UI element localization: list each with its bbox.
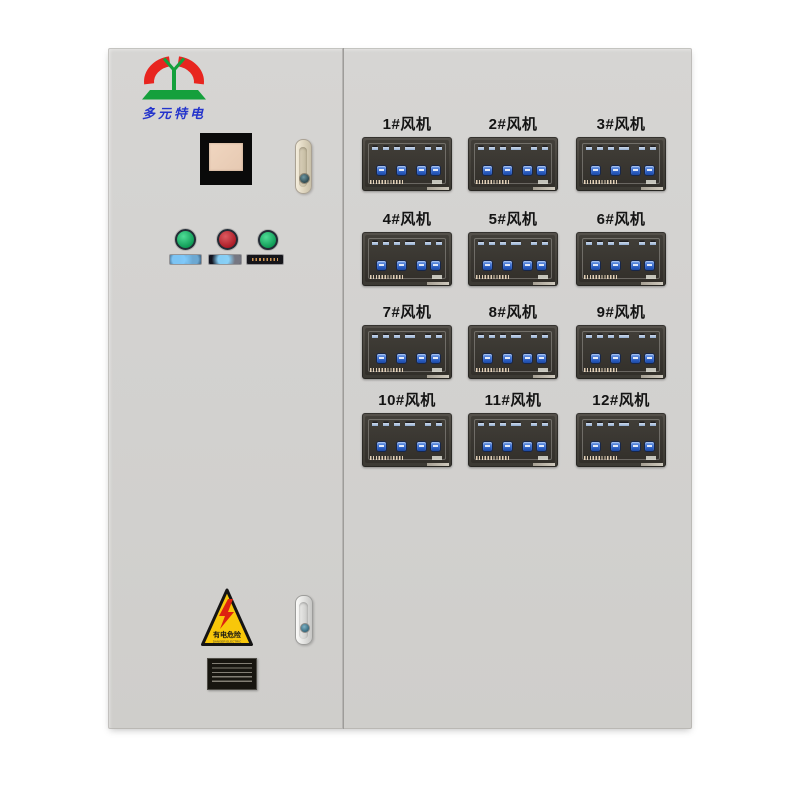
indicator-lamp xyxy=(383,423,389,426)
fan-controller-panel xyxy=(362,137,452,191)
fan-controller-panel xyxy=(576,325,666,379)
indicator-lamp xyxy=(511,147,521,150)
fan-controller-panel xyxy=(362,413,452,467)
indicator-lamp xyxy=(405,242,415,245)
panel-frame-label xyxy=(641,187,663,190)
indicator-lamp xyxy=(511,423,521,426)
panel-caption-text xyxy=(370,180,404,184)
fan-panel-label: 8#风机 xyxy=(463,304,563,322)
panel-button[interactable] xyxy=(431,261,440,270)
panel-frame-label xyxy=(641,463,663,466)
panel-button[interactable] xyxy=(523,442,532,451)
panel-button[interactable] xyxy=(591,261,600,270)
panel-model-text xyxy=(646,368,656,372)
indicator-lamp xyxy=(425,147,431,150)
panel-button[interactable] xyxy=(431,442,440,451)
panel-button[interactable] xyxy=(591,442,600,451)
panel-button[interactable] xyxy=(631,261,640,270)
panel-button[interactable] xyxy=(631,442,640,451)
panel-frame-label xyxy=(641,375,663,378)
fan-panel-label: 4#风机 xyxy=(357,211,457,229)
panel-frame-label xyxy=(533,463,555,466)
panel-button[interactable] xyxy=(397,166,406,175)
fan-controller-panel xyxy=(468,137,558,191)
panel-frame-label xyxy=(427,375,449,378)
fan-panel-unit: 9#风机 xyxy=(571,304,671,382)
indicator-lamp xyxy=(650,242,656,245)
fan-controller-panel xyxy=(576,413,666,467)
indicator-lamp xyxy=(394,423,400,426)
fan-controller-panel xyxy=(576,232,666,286)
fan-panel-unit: 11#风机 xyxy=(463,392,563,470)
indicator-lamp xyxy=(478,147,484,150)
indicator-lamp xyxy=(597,423,603,426)
indicator-lamp xyxy=(597,335,603,338)
panel-button[interactable] xyxy=(377,354,386,363)
indicator-lamp xyxy=(511,335,521,338)
button-label-strip-3 xyxy=(247,255,283,264)
indicator-lamp xyxy=(650,335,656,338)
indicator-lamp xyxy=(489,242,495,245)
indicator-lamp xyxy=(478,242,484,245)
indicator-lamp xyxy=(500,335,506,338)
panel-button[interactable] xyxy=(417,442,426,451)
panel-button[interactable] xyxy=(417,261,426,270)
panel-model-text xyxy=(646,275,656,279)
panel-caption-text xyxy=(370,368,404,372)
fan-panel-unit: 1#风机 xyxy=(357,116,457,194)
green-push-button-2[interactable] xyxy=(258,230,278,250)
panel-model-text xyxy=(432,180,442,184)
panel-button[interactable] xyxy=(537,354,546,363)
indicator-lamp xyxy=(436,147,442,150)
panel-button[interactable] xyxy=(645,166,654,175)
indicator-lamp xyxy=(372,147,378,150)
panel-caption-text xyxy=(370,456,404,460)
fan-panel-label: 2#风机 xyxy=(463,116,563,134)
fan-panel-unit: 12#风机 xyxy=(571,392,671,470)
indicator-lamp xyxy=(511,242,521,245)
indicator-lamp xyxy=(586,242,592,245)
panel-button[interactable] xyxy=(483,261,492,270)
fan-controller-face xyxy=(471,416,555,463)
button-label-strip-1 xyxy=(170,255,201,264)
fan-controller-face xyxy=(365,328,449,375)
panel-button[interactable] xyxy=(611,166,620,175)
fan-controller-face xyxy=(579,416,663,463)
fan-controller-face xyxy=(365,235,449,282)
indicator-lamp xyxy=(531,423,537,426)
panel-button[interactable] xyxy=(483,354,492,363)
fan-controller-panel xyxy=(362,232,452,286)
indicator-lamp xyxy=(405,335,415,338)
panel-caption-text xyxy=(476,456,510,460)
panel-button[interactable] xyxy=(431,166,440,175)
indicator-lamp xyxy=(650,147,656,150)
panel-model-text xyxy=(432,368,442,372)
indicator-lamp xyxy=(639,335,645,338)
indicator-lamp xyxy=(436,242,442,245)
panel-model-text xyxy=(538,456,548,460)
panel-button[interactable] xyxy=(523,261,532,270)
panel-button[interactable] xyxy=(537,166,546,175)
indicator-lamp xyxy=(500,147,506,150)
door-seam xyxy=(342,48,344,729)
panel-caption-text xyxy=(476,180,510,184)
panel-caption-text xyxy=(476,368,510,372)
panel-frame-label xyxy=(427,463,449,466)
panel-button[interactable] xyxy=(523,354,532,363)
fan-controller-face xyxy=(471,140,555,187)
indicator-lamp xyxy=(619,335,629,338)
panel-frame-label xyxy=(533,375,555,378)
panel-button[interactable] xyxy=(397,354,406,363)
danger-subtitle: DANGER ELECTRIC xyxy=(213,640,242,644)
indicator-lamp xyxy=(639,147,645,150)
panel-button[interactable] xyxy=(431,354,440,363)
indicator-lamp xyxy=(542,335,548,338)
panel-caption-text xyxy=(584,180,618,184)
fan-controller-face xyxy=(579,235,663,282)
danger-title: 有电危险 xyxy=(213,630,242,639)
fan-panel-unit: 7#风机 xyxy=(357,304,457,382)
indicator-lamp xyxy=(436,423,442,426)
fan-controller-panel xyxy=(468,325,558,379)
panel-model-text xyxy=(646,180,656,184)
fan-panel-label: 12#风机 xyxy=(571,392,671,410)
panel-button[interactable] xyxy=(523,166,532,175)
panel-button[interactable] xyxy=(377,442,386,451)
fan-controller-face xyxy=(365,140,449,187)
indicator-lamp xyxy=(372,423,378,426)
indicator-lamp xyxy=(478,423,484,426)
indicator-lamp xyxy=(639,242,645,245)
indicator-lamp xyxy=(531,147,537,150)
panel-button[interactable] xyxy=(397,442,406,451)
panel-caption-text xyxy=(370,275,404,279)
indicator-lamp xyxy=(394,242,400,245)
fan-panel-unit: 4#风机 xyxy=(357,211,457,289)
panel-button[interactable] xyxy=(645,261,654,270)
panel-button[interactable] xyxy=(417,166,426,175)
fan-panel-label: 9#风机 xyxy=(571,304,671,322)
indicator-lamp xyxy=(619,242,629,245)
panel-model-text xyxy=(538,275,548,279)
panel-button[interactable] xyxy=(611,261,620,270)
indicator-lamp xyxy=(586,335,592,338)
indicator-lamp xyxy=(608,242,614,245)
indicator-lamp xyxy=(436,335,442,338)
indicator-lamp xyxy=(542,423,548,426)
indicator-lamp xyxy=(500,242,506,245)
fan-panel-label: 10#风机 xyxy=(357,392,457,410)
panel-button[interactable] xyxy=(397,261,406,270)
display-screen xyxy=(209,143,243,171)
panel-button[interactable] xyxy=(537,261,546,270)
fan-panel-label: 3#风机 xyxy=(571,116,671,134)
panel-model-text xyxy=(432,456,442,460)
indicator-lamp xyxy=(608,147,614,150)
panel-button[interactable] xyxy=(503,166,512,175)
panel-button[interactable] xyxy=(611,442,620,451)
indicator-lamp xyxy=(619,147,629,150)
fan-panel-label: 5#风机 xyxy=(463,211,563,229)
indicator-lamp xyxy=(489,147,495,150)
indicator-lamp xyxy=(489,423,495,426)
indicator-lamp xyxy=(425,423,431,426)
panel-button[interactable] xyxy=(503,354,512,363)
panel-button[interactable] xyxy=(611,354,620,363)
panel-caption-text xyxy=(584,456,618,460)
indicator-lamp xyxy=(619,423,629,426)
panel-button[interactable] xyxy=(377,166,386,175)
panel-model-text xyxy=(646,456,656,460)
panel-button[interactable] xyxy=(503,261,512,270)
indicator-lamp xyxy=(405,423,415,426)
indicator-lamp xyxy=(597,147,603,150)
indicator-lamp xyxy=(542,147,548,150)
panel-button[interactable] xyxy=(503,442,512,451)
fan-panel-unit: 2#风机 xyxy=(463,116,563,194)
indicator-lamp xyxy=(425,242,431,245)
display-window xyxy=(200,133,252,185)
panel-button[interactable] xyxy=(483,442,492,451)
panel-button[interactable] xyxy=(417,354,426,363)
indicator-lamp xyxy=(639,423,645,426)
panel-caption-text xyxy=(476,275,510,279)
indicator-lamp xyxy=(500,423,506,426)
indicator-lamp xyxy=(542,242,548,245)
panel-button[interactable] xyxy=(591,354,600,363)
panel-button[interactable] xyxy=(645,442,654,451)
indicator-lamp xyxy=(531,242,537,245)
fan-controller-panel xyxy=(362,325,452,379)
indicator-lamp xyxy=(489,335,495,338)
fan-panel-unit: 10#风机 xyxy=(357,392,457,470)
danger-sticker: 有电危险 DANGER ELECTRIC xyxy=(200,587,254,649)
indicator-lamp xyxy=(597,242,603,245)
panel-button[interactable] xyxy=(631,166,640,175)
handle-lock-button[interactable] xyxy=(299,173,310,184)
panel-model-text xyxy=(538,180,548,184)
panel-button[interactable] xyxy=(645,354,654,363)
fan-controller-panel xyxy=(468,413,558,467)
fan-panel-label: 1#风机 xyxy=(357,116,457,134)
handle-recess xyxy=(299,602,308,639)
panel-button[interactable] xyxy=(591,166,600,175)
red-push-button[interactable] xyxy=(217,229,238,250)
indicator-lamp xyxy=(650,423,656,426)
control-cabinet: 多元特电 有电危险 DANGER ELECTRIC 1#风机 xyxy=(108,48,692,729)
fan-panel-unit: 5#风机 xyxy=(463,211,563,289)
fan-panel-unit: 8#风机 xyxy=(463,304,563,382)
button-label-strip-2 xyxy=(209,255,241,264)
panel-model-text xyxy=(432,275,442,279)
warning-triangle-icon: 有电危险 DANGER ELECTRIC xyxy=(200,587,254,649)
panel-caption-text xyxy=(584,368,618,372)
indicator-lamp xyxy=(586,423,592,426)
fan-panel-unit: 3#风机 xyxy=(571,116,671,194)
indicator-lamp xyxy=(372,242,378,245)
indicator-lamp xyxy=(405,147,415,150)
panel-frame-label xyxy=(533,187,555,190)
indicator-lamp xyxy=(383,147,389,150)
indicator-lamp xyxy=(608,423,614,426)
fan-panel-unit: 6#风机 xyxy=(571,211,671,289)
fan-panel-label: 7#风机 xyxy=(357,304,457,322)
fan-controller-face xyxy=(471,328,555,375)
panel-frame-label xyxy=(427,187,449,190)
door-handle-top[interactable] xyxy=(295,139,312,194)
indicator-lamp xyxy=(394,147,400,150)
green-push-button-1[interactable] xyxy=(175,229,196,250)
fan-controller-face xyxy=(471,235,555,282)
panel-button[interactable] xyxy=(537,442,546,451)
panel-caption-text xyxy=(584,275,618,279)
panel-frame-label xyxy=(533,282,555,285)
brand-logo: 多元特电 xyxy=(128,56,220,122)
indicator-lamp xyxy=(425,335,431,338)
fan-controller-face xyxy=(365,416,449,463)
fan-controller-face xyxy=(579,328,663,375)
fan-panel-label: 11#风机 xyxy=(463,392,563,410)
panel-button[interactable] xyxy=(483,166,492,175)
panel-model-text xyxy=(538,368,548,372)
logo-text: 多元特电 xyxy=(128,103,220,122)
logo-mark-icon xyxy=(136,56,212,102)
panel-frame-label xyxy=(427,282,449,285)
panel-frame-label xyxy=(641,282,663,285)
indicator-lamp xyxy=(372,335,378,338)
indicator-lamp xyxy=(383,242,389,245)
indicator-lamp xyxy=(586,147,592,150)
fan-controller-panel xyxy=(576,137,666,191)
fan-controller-panel xyxy=(468,232,558,286)
indicator-lamp xyxy=(478,335,484,338)
door-handle-bottom[interactable] xyxy=(295,595,313,645)
indicator-lamp xyxy=(531,335,537,338)
panel-button[interactable] xyxy=(631,354,640,363)
fan-panel-label: 6#风机 xyxy=(571,211,671,229)
indicator-lamp xyxy=(608,335,614,338)
panel-button[interactable] xyxy=(377,261,386,270)
indicator-lamp xyxy=(383,335,389,338)
indicator-lamp xyxy=(394,335,400,338)
nameplate xyxy=(207,658,257,690)
handle-lock-button[interactable] xyxy=(300,623,310,633)
fan-controller-face xyxy=(579,140,663,187)
